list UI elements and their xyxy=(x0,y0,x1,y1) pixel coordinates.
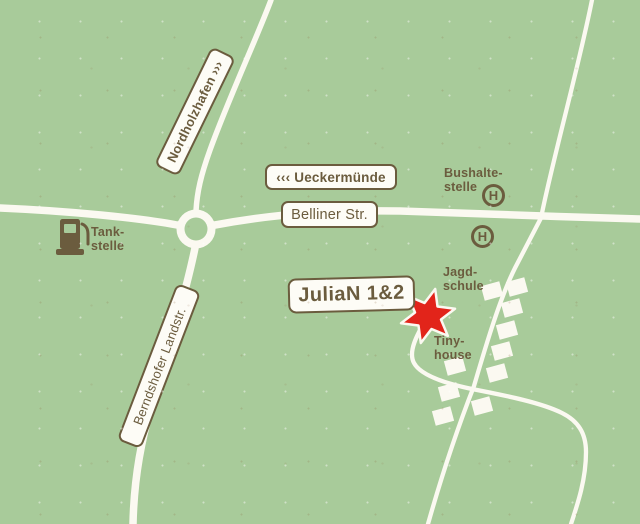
tinyhouse-line1: Tiny- xyxy=(434,335,472,349)
road-sign-ueckermuende-text: ‹‹‹ Ueckermünde xyxy=(276,170,386,185)
bus-stop-h-letter: H xyxy=(489,189,498,202)
road-sign-belliner-str: Belliner Str. xyxy=(281,201,378,228)
road-sign-belliner-str-text: Belliner Str. xyxy=(291,207,368,223)
bus-stop-icon-2: H xyxy=(471,225,494,248)
bus-stop-icon: H xyxy=(482,184,505,207)
roundabout-icon xyxy=(177,210,216,249)
jagdschule-label: Jagd- schule xyxy=(443,266,484,293)
building xyxy=(491,341,513,360)
building xyxy=(486,363,508,382)
julian-location-label: JuliaN 1&2 xyxy=(288,275,416,313)
map-canvas: Nordholzhafen ››› ‹‹‹ Ueckermünde Bellin… xyxy=(0,0,640,524)
tinyhouse-line2: house xyxy=(434,349,472,363)
roads xyxy=(0,0,640,524)
bushaltestelle-line1: Bushalte- xyxy=(444,167,503,181)
building xyxy=(438,382,460,401)
tinyhouse-label: Tiny- house xyxy=(434,335,472,362)
building xyxy=(481,281,503,300)
tankstelle-line2: stelle xyxy=(91,240,124,254)
tankstelle-label: Tank- stelle xyxy=(91,226,124,253)
road-northeast-diagonal xyxy=(428,0,592,524)
fuel-pump-icon xyxy=(56,219,88,255)
julian-location-label-text: JuliaN 1&2 xyxy=(298,282,405,308)
building xyxy=(496,320,518,339)
map-graphics xyxy=(0,0,640,524)
building xyxy=(432,406,454,425)
building xyxy=(501,298,523,317)
jagdschule-line1: Jagd- xyxy=(443,266,484,280)
jagdschule-line2: schule xyxy=(443,280,484,294)
tankstelle-line1: Tank- xyxy=(91,226,124,240)
bus-stop-h-letter: H xyxy=(478,230,487,243)
building xyxy=(471,396,493,415)
road-sign-ueckermuende: ‹‹‹ Ueckermünde xyxy=(265,164,397,190)
